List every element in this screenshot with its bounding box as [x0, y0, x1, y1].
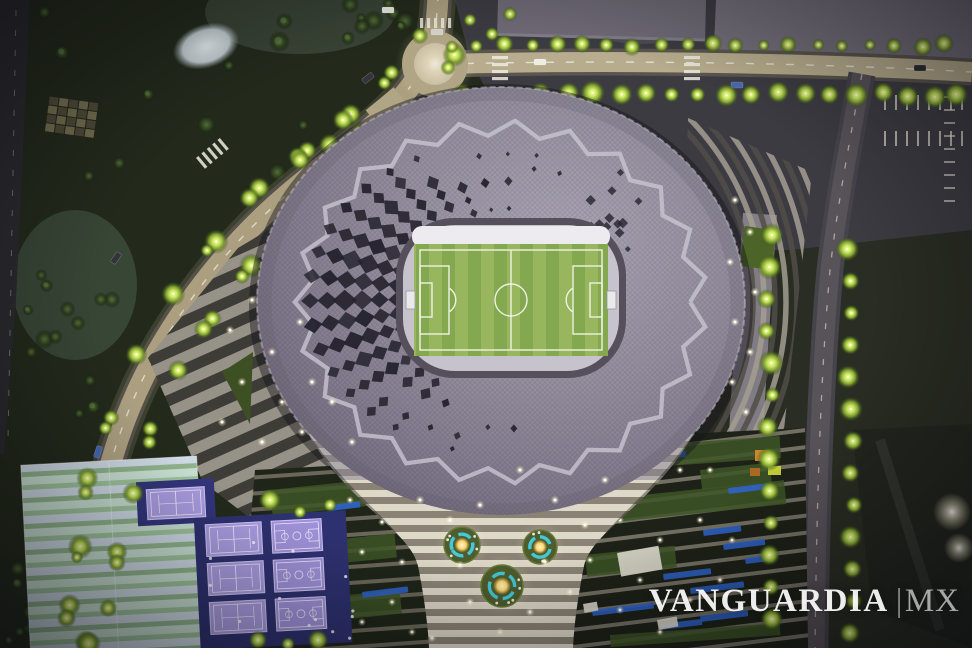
watermark-suffix: MX [905, 583, 960, 619]
stadium-model-photo: VANGUARDIA|MX [0, 0, 972, 648]
watermark-text: VANGUARDIA [649, 583, 889, 619]
watermark-separator: | [896, 583, 904, 619]
watermark: VANGUARDIA|MX [649, 583, 960, 620]
photo-canvas [0, 0, 972, 648]
vignette [0, 0, 972, 648]
